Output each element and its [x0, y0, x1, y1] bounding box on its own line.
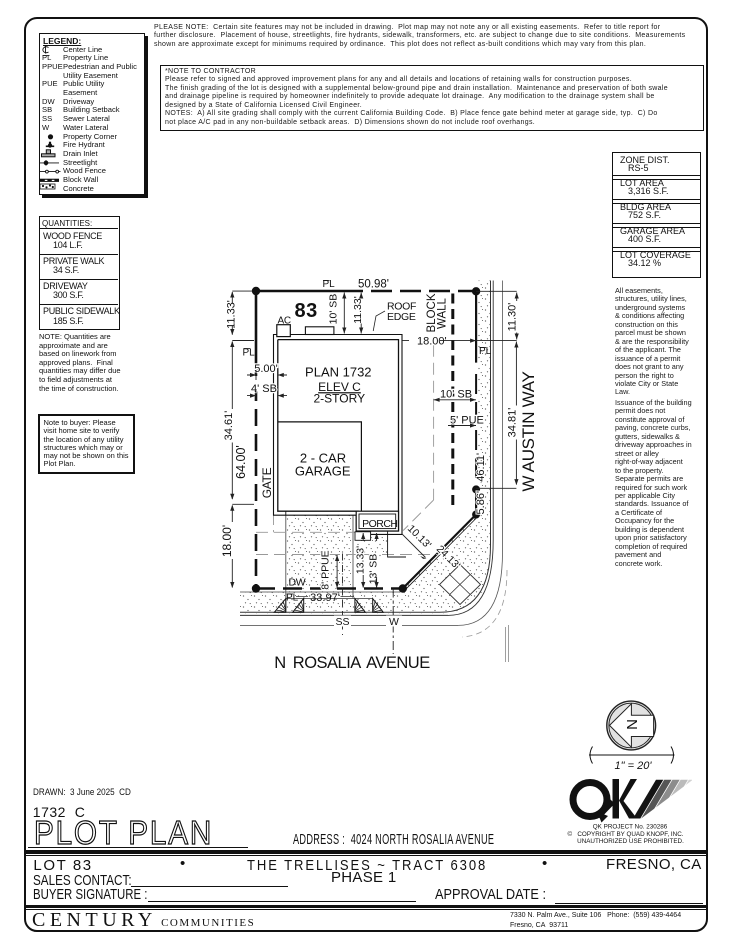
svg-text:18.00': 18.00' [220, 525, 234, 557]
svg-text:AC: AC [278, 316, 291, 327]
svg-text:UNAUTHORIZED USE PROHIBITED.: UNAUTHORIZED USE PROHIBITED. [577, 838, 684, 845]
svg-text:WALL: WALL [436, 297, 448, 328]
svg-text:11.30': 11.30' [507, 303, 519, 332]
svg-text:8' PPUE: 8' PPUE [320, 550, 332, 589]
svg-text:46.11': 46.11' [475, 453, 487, 482]
svg-text:13' SB: 13' SB [367, 554, 379, 585]
svg-text:10' SB: 10' SB [440, 389, 472, 401]
svg-text:5' PUE: 5' PUE [450, 415, 484, 427]
svg-text:W AUSTIN WAY: W AUSTIN WAY [519, 371, 538, 491]
svg-text:34.81': 34.81' [507, 408, 519, 438]
svg-text:83: 83 [295, 300, 318, 322]
svg-text:PL: PL [243, 348, 256, 359]
svg-text:64.00': 64.00' [234, 445, 248, 479]
svg-text:PLAN 1732: PLAN 1732 [305, 364, 372, 379]
svg-text:5.86': 5.86' [475, 491, 487, 515]
svg-text:DW: DW [289, 577, 306, 589]
svg-text:QK PROJECT No. 230286: QK PROJECT No. 230286 [593, 824, 668, 831]
svg-text:10.13': 10.13' [405, 523, 433, 551]
svg-text:13.33': 13.33' [354, 546, 366, 574]
svg-text:10' SB: 10' SB [328, 294, 340, 325]
svg-text:EDGE: EDGE [387, 311, 416, 323]
svg-text:N: N [624, 719, 641, 730]
svg-text:© COPYRIGHT BY QUAD KNOPF, I: © COPYRIGHT BY QUAD KNOPF, INC. [567, 830, 683, 838]
svg-text:50.98': 50.98' [358, 278, 389, 290]
svg-text:GATE: GATE [260, 467, 274, 498]
svg-text:GARAGE: GARAGE [295, 463, 351, 478]
svg-text:34.61': 34.61' [223, 411, 235, 441]
svg-text:N ROSALIA AVENUE: N ROSALIA AVENUE [274, 654, 430, 672]
svg-text:2-STORY: 2-STORY [314, 392, 366, 406]
svg-text:4' SB: 4' SB [251, 383, 277, 395]
svg-text:SS: SS [335, 616, 349, 628]
svg-text:18.00': 18.00' [417, 336, 447, 348]
svg-text:11.33': 11.33' [352, 296, 364, 324]
svg-text:W: W [389, 616, 399, 628]
svg-text:PORCH: PORCH [362, 518, 397, 530]
svg-text:33.97': 33.97' [310, 592, 340, 604]
svg-text:5.00': 5.00' [254, 363, 278, 375]
svg-text:1" = 20': 1" = 20' [615, 760, 653, 772]
svg-text:11.33': 11.33' [226, 300, 238, 329]
